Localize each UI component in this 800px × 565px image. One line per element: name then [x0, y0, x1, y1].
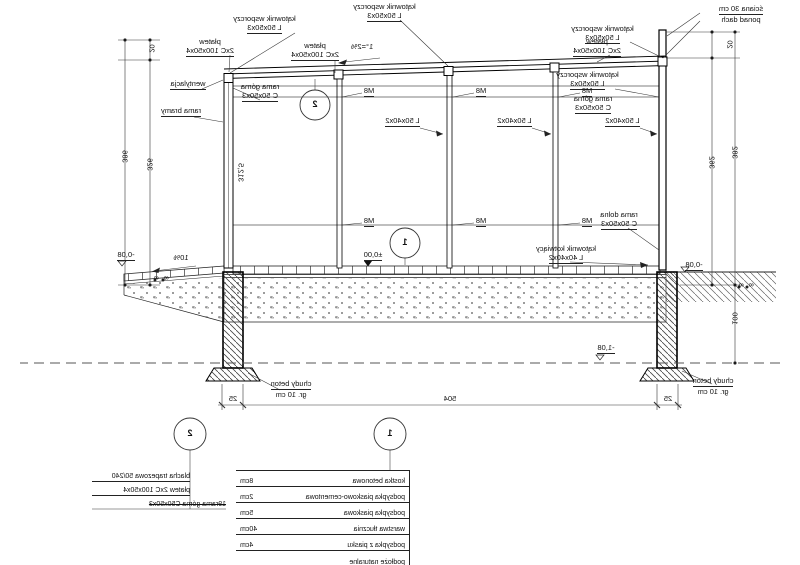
dim-362: 362	[708, 149, 717, 177]
label-rama-gorna: rama górna C 50x50x3	[558, 94, 628, 114]
dim-25-gate-side: 25	[222, 394, 244, 403]
label-chudy-beton: chudy beton gr. 10 cm	[684, 376, 742, 396]
legend-row: warstwa tłucznia 40cm	[236, 519, 409, 535]
marker-floor-1: 1	[398, 237, 412, 248]
steel-structure	[224, 30, 667, 270]
label-girt: L 50x40x2	[375, 116, 430, 127]
label-rama-dolna: rama dolna C 50x50x3	[584, 210, 654, 230]
dim-20-gate-side: 20	[148, 37, 157, 61]
label-girt: L 50x40x2	[487, 116, 542, 127]
label-level-m008: -0,08	[112, 250, 140, 261]
label-platew: płatew 2xC 100x50x4	[170, 37, 250, 57]
label-wentylacja: wentylacja	[160, 79, 216, 90]
dim-326: 326	[146, 151, 155, 179]
exterior-apron-gate-side	[124, 266, 224, 322]
floor-layers	[224, 266, 666, 322]
drawing-viewport: ściana 30 cm ponad dach kątownik wsporcz…	[0, 0, 800, 565]
label-katownik-kotwiacy: kątownik kotwiący L 40x40x2	[520, 244, 612, 264]
legend-row: podsypka piaskowa 5cm	[236, 503, 409, 519]
dim-8: 8	[151, 272, 159, 284]
label-rama-bramy: rama bramy	[150, 106, 212, 117]
label-m8-bolt: M8	[362, 216, 376, 227]
label-level-m108: -1,08	[592, 343, 620, 354]
legend-row: podłoże naturalne	[236, 551, 409, 565]
dim-100: 100	[731, 305, 740, 333]
floor-layers-legend: kostka betonowa 8cm podsypka piaskowo-ce…	[236, 470, 410, 565]
legend-row: kostka betonowa 8cm	[236, 471, 409, 487]
roof-legend-row: płatew 2xC 100x50x4	[92, 487, 190, 496]
marker-roof-2: 2	[308, 99, 322, 110]
label-ground-slope: 10%	[168, 253, 194, 262]
legend-row: podsypka z piasku 4cm	[236, 535, 409, 551]
label-m8-bolt: M8	[474, 216, 488, 227]
dim-386: 386	[121, 143, 130, 171]
dim-504: 504	[436, 394, 464, 403]
label-girt: L 50x40x2	[595, 116, 650, 127]
dim-20-wall-side: 20	[726, 33, 735, 57]
label-m8-bolt: M8	[474, 86, 488, 97]
legend-row: podsypka piaskowo-cementowa 2cm	[236, 487, 409, 503]
dim-382: 382	[731, 139, 740, 167]
legend-marker-2: 2	[183, 428, 197, 439]
label-katownik-wsporczy: kątownik wsporczy L 50x50x3	[217, 14, 312, 34]
dim-8: 8	[736, 279, 744, 291]
dim-8: 8	[161, 272, 169, 284]
label-sciana: ściana 30 cm ponad dach	[686, 4, 796, 24]
roof-legend-row-struck: 19rama górna C50x50x3	[92, 501, 226, 509]
label-level-m008: -0,08	[680, 260, 708, 271]
dim-gate-height-3125: 312,5	[237, 158, 246, 188]
label-katownik-wsporczy: kątownik wsporczy L 50x50x3	[337, 2, 432, 22]
label-level-zero: ±0,00	[356, 250, 390, 261]
label-m8-bolt: M8	[362, 86, 376, 97]
dim-25-wall-side: 25	[657, 394, 679, 403]
roof-legend-row: blacha trapezowa 50/240	[92, 473, 190, 482]
exterior-ground-wall-side	[666, 272, 776, 302]
drawing-sheet: ściana 30 cm ponad dach kątownik wsporcz…	[0, 0, 800, 565]
label-m8-bolt: M8	[580, 86, 594, 97]
dim-8: 8	[746, 279, 754, 291]
legend-marker-1: 1	[383, 428, 397, 439]
label-chudy-beton: chudy beton gr. 10 cm	[262, 379, 320, 399]
label-rama-gorna: rama górna C 50x50x3	[225, 82, 295, 102]
label-platew: płatew 2xC 100x50x4	[557, 37, 637, 57]
label-roof-slope: 1°=2%	[342, 42, 382, 51]
